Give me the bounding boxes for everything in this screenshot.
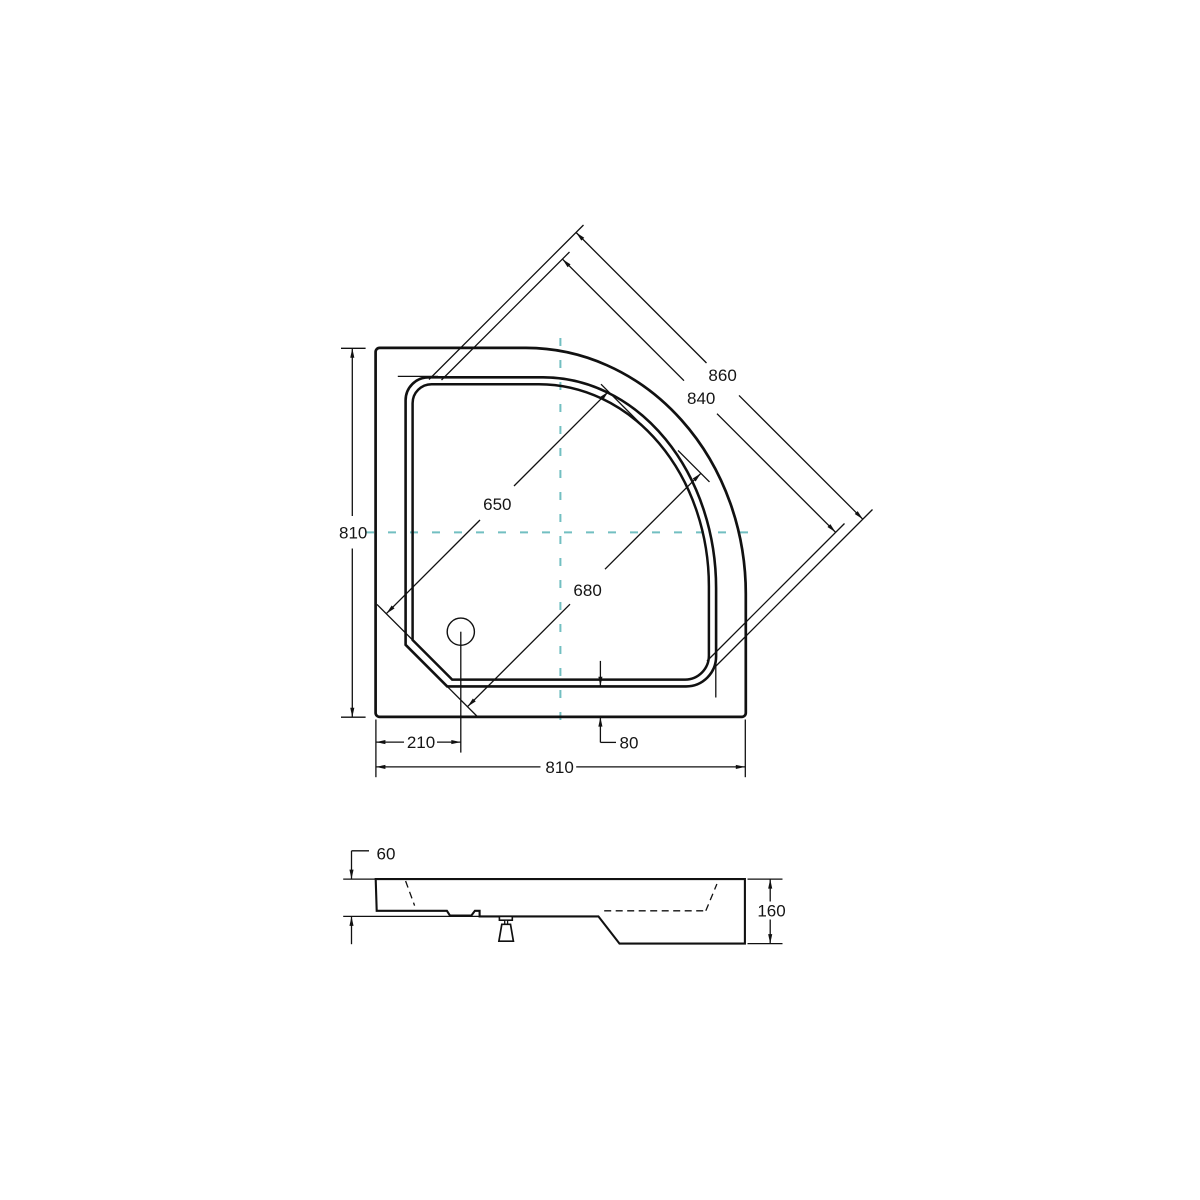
svg-text:210: 210 xyxy=(407,733,435,752)
svg-text:810: 810 xyxy=(545,758,573,777)
svg-text:650: 650 xyxy=(483,495,511,514)
svg-text:80: 80 xyxy=(620,734,639,753)
svg-text:160: 160 xyxy=(757,902,785,921)
svg-text:860: 860 xyxy=(708,366,736,385)
svg-text:810: 810 xyxy=(339,523,367,542)
svg-text:680: 680 xyxy=(573,581,601,600)
svg-text:60: 60 xyxy=(377,844,396,863)
svg-text:840: 840 xyxy=(687,389,715,408)
